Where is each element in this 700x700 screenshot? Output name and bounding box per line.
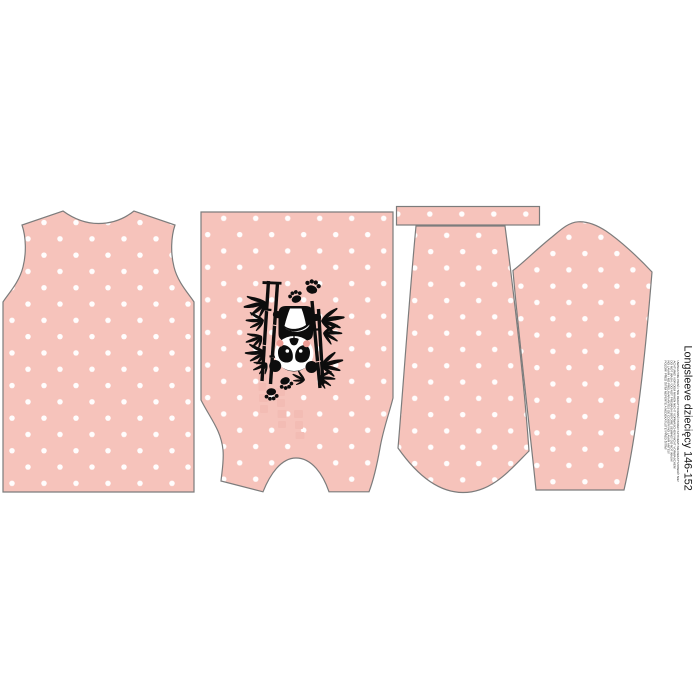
svg-text:POZOR! PŘED ŠITÍM NEPERTE A NE: POZOR! PŘED ŠITÍM NEPERTE A NEDEKATUJTE!… (663, 361, 668, 450)
svg-text:Longsleeve dziecięcy 146-152: Longsleeve dziecięcy 146-152 (682, 346, 694, 491)
